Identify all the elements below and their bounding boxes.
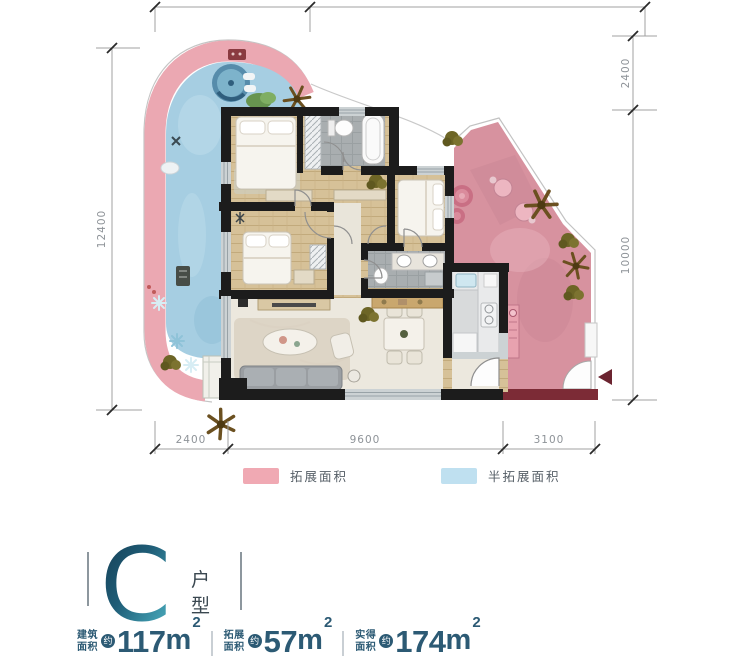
floor-plan: 12400 2400 10000 2400 9600 3100 xyxy=(0,0,739,460)
speaker xyxy=(238,298,248,307)
expansion-label: 拓展面积 xyxy=(290,466,348,485)
approx-badge: 约 xyxy=(101,634,115,648)
approx-badge: 约 xyxy=(248,634,262,648)
semi-expansion-label: 半拓展面积 xyxy=(488,466,561,485)
fridge xyxy=(453,333,477,354)
stat-unit: m xyxy=(446,626,472,655)
stat-value: 57 xyxy=(264,626,297,657)
terrace-notch xyxy=(585,323,597,357)
unit-title-block: C 户 型 xyxy=(0,530,739,630)
unit-type-char-1: 户 xyxy=(191,568,211,594)
stat-power: 2 xyxy=(472,614,480,631)
dim-right-lower: 10000 xyxy=(620,236,632,274)
toilet xyxy=(335,120,353,136)
unit-type-label: 户 型 xyxy=(191,568,211,620)
divider-bar xyxy=(240,552,242,610)
stat-value: 117 xyxy=(117,626,166,657)
terrace-sill xyxy=(503,389,598,400)
dim-left: 12400 xyxy=(96,210,108,248)
floor-plan-page: 12400 2400 10000 2400 9600 3100 拓展面积 半拓展… xyxy=(0,0,739,670)
coffee-table xyxy=(263,329,317,355)
dim-bottom-left: 2400 xyxy=(176,434,207,446)
dim-bottom-right: 3100 xyxy=(534,434,565,446)
area-stats: 建筑面积 约 117 m 2 拓展面积 约 57 m 2 实得面积 约 174 … xyxy=(77,626,480,657)
sink xyxy=(397,255,411,267)
expansion-swatch xyxy=(243,468,279,484)
tv xyxy=(272,303,316,307)
unit-letter: C xyxy=(102,536,171,628)
stat-built-area: 建筑面积 约 117 m 2 xyxy=(77,626,200,657)
dim-bottom-middle: 9600 xyxy=(350,434,381,446)
nightstand xyxy=(294,270,314,284)
legend: 拓展面积 半拓展面积 xyxy=(243,466,561,485)
entry-arrow-icon xyxy=(598,369,612,385)
divider-bar xyxy=(87,552,89,606)
semi-expansion-swatch xyxy=(441,468,477,484)
stat-divider xyxy=(342,631,344,656)
console-table xyxy=(334,190,386,200)
sink xyxy=(423,255,437,267)
legend-item-semi-expansion: 半拓展面积 xyxy=(441,466,561,485)
stat-expansion-area: 拓展面积 约 57 m 2 xyxy=(224,626,332,657)
stat-power: 2 xyxy=(192,614,200,631)
grill xyxy=(176,266,190,286)
stove xyxy=(481,303,497,327)
closet xyxy=(305,114,321,169)
stat-power: 2 xyxy=(324,614,332,631)
wardrobe xyxy=(310,245,326,269)
stat-value: 174 xyxy=(395,626,445,657)
legend-item-expansion: 拓展面积 xyxy=(243,466,348,485)
stat-actual-area: 实得面积 约 174 m 2 xyxy=(355,626,479,657)
floor-lamp xyxy=(348,370,360,382)
stat-divider xyxy=(211,631,213,656)
planter-box xyxy=(228,49,246,60)
approx-badge: 约 xyxy=(379,634,393,648)
stat-label: 拓展面积 xyxy=(224,630,245,654)
stat-unit: m xyxy=(297,626,323,655)
shell-decor xyxy=(161,162,179,174)
stat-label: 建筑面积 xyxy=(77,630,98,654)
unit-letter-graphic: C xyxy=(102,536,182,628)
bathtub xyxy=(362,114,384,164)
kitchen-sink xyxy=(456,274,476,287)
stat-unit: m xyxy=(166,626,192,655)
shower xyxy=(425,272,443,286)
dresser xyxy=(266,190,312,201)
stat-label: 实得面积 xyxy=(355,630,376,654)
dim-right-upper: 2400 xyxy=(620,58,632,89)
terrace-table xyxy=(494,179,512,197)
corridor-floor xyxy=(334,203,361,295)
